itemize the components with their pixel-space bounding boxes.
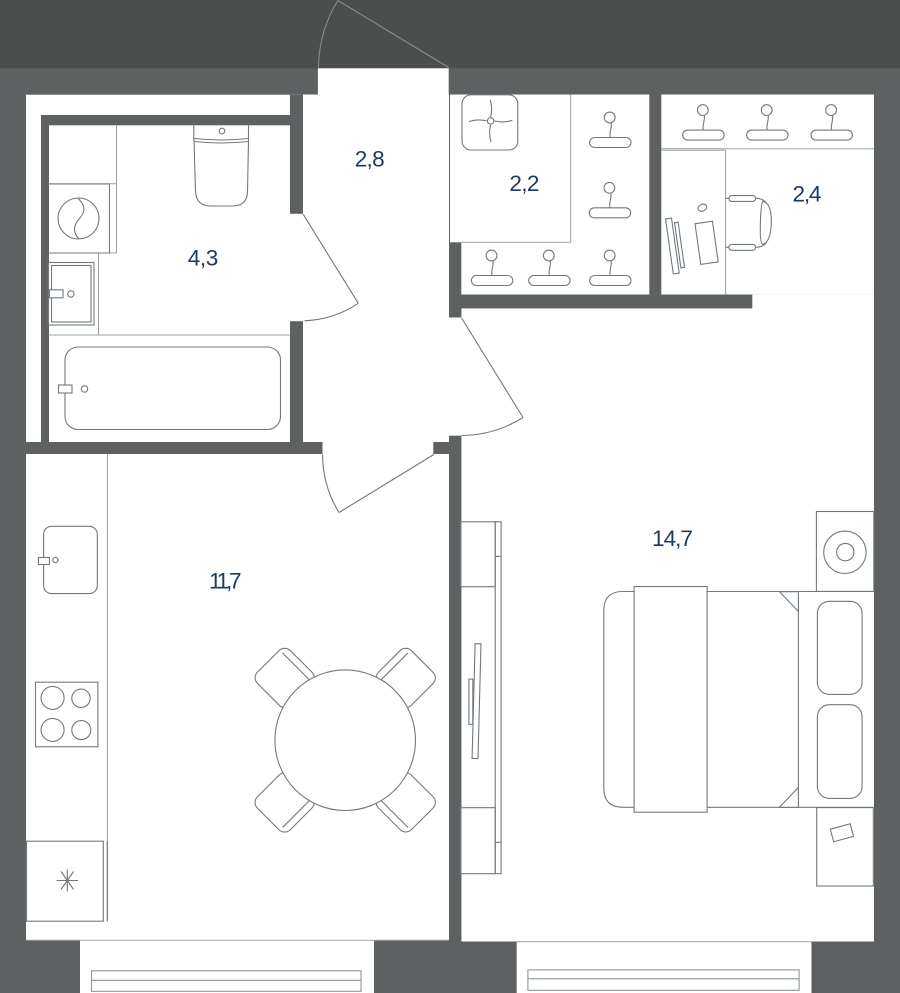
svg-text:2,4: 2,4 — [793, 181, 822, 206]
svg-text:2,8: 2,8 — [355, 147, 385, 172]
svg-text:11,7: 11,7 — [209, 569, 242, 594]
svg-text:14,7: 14,7 — [652, 526, 693, 551]
svg-text:2,2: 2,2 — [509, 171, 539, 196]
svg-text:4,3: 4,3 — [188, 246, 219, 271]
